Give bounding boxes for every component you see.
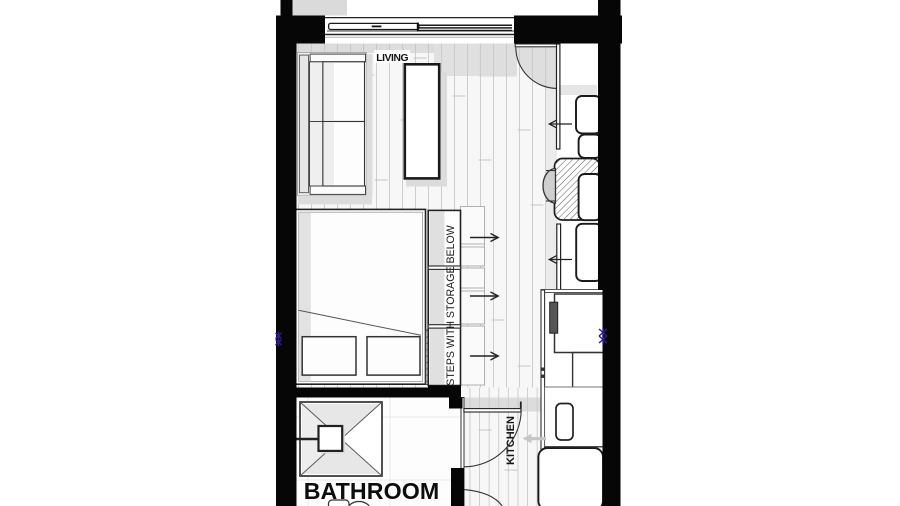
svg-text:STEPS WITH STORAGE BELOW: STEPS WITH STORAGE BELOW — [445, 225, 457, 386]
svg-text:BATHROOM: BATHROOM — [304, 478, 440, 504]
svg-text:LIVING: LIVING — [376, 53, 408, 64]
svg-text:KITCHEN: KITCHEN — [505, 416, 517, 465]
